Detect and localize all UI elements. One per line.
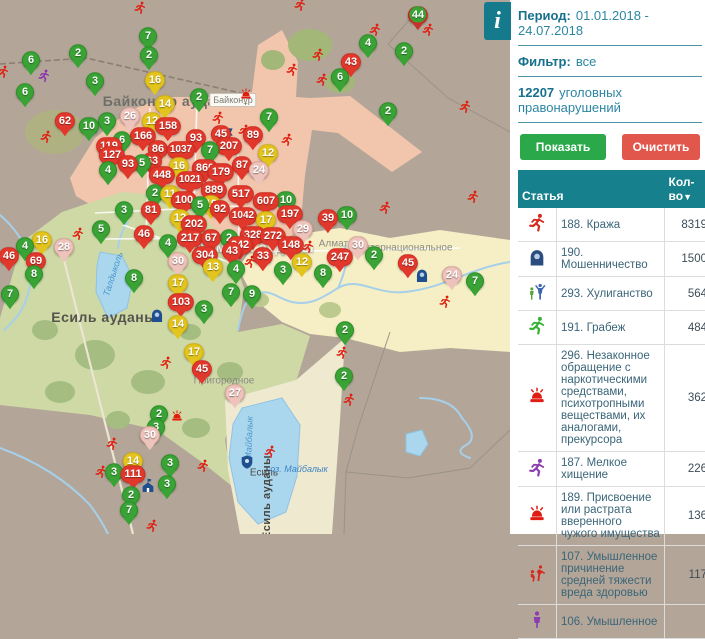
map-marker[interactable]: 16: [32, 231, 52, 249]
table-row[interactable]: 190. Мошенничество1500: [518, 242, 705, 277]
runner-icon[interactable]: [335, 346, 349, 360]
map-marker[interactable]: 92: [210, 200, 230, 218]
map-marker[interactable]: 2: [69, 44, 87, 62]
map-marker[interactable]: 12: [292, 253, 312, 271]
map-marker[interactable]: 14: [155, 95, 175, 113]
map-marker[interactable]: 148: [278, 236, 304, 254]
total-count: 12207: [518, 85, 554, 100]
runner-icon: [518, 208, 557, 242]
article-label: 107. Умышленное причинение средней тяжес…: [557, 546, 665, 605]
table-row[interactable]: 107. Умышленное причинение средней тяжес…: [518, 546, 705, 605]
map-marker[interactable]: 30: [140, 426, 160, 444]
runner-icon[interactable]: [280, 133, 294, 147]
column-article[interactable]: Статья: [518, 170, 665, 208]
map-marker[interactable]: 3: [115, 201, 133, 219]
map-marker[interactable]: 7: [1, 285, 19, 303]
runner-icon[interactable]: [159, 356, 173, 370]
map-marker[interactable]: 7: [222, 283, 240, 301]
map-marker[interactable]: 4: [359, 34, 377, 52]
map-marker[interactable]: 3: [98, 112, 116, 130]
article-count: 136: [665, 487, 705, 546]
map-marker[interactable]: 1021: [176, 171, 204, 189]
hooded-icon[interactable]: [414, 268, 430, 284]
runner-icon[interactable]: [105, 437, 119, 451]
fight-icon: [518, 546, 557, 605]
map-marker[interactable]: 247: [327, 248, 353, 266]
map-marker[interactable]: 46: [134, 225, 154, 243]
table-row[interactable]: 188. Кража8319: [518, 208, 705, 242]
map-marker[interactable]: 45: [398, 254, 418, 272]
map-marker[interactable]: 7: [260, 108, 278, 126]
map-marker[interactable]: 10: [79, 117, 99, 135]
filter-label: Фильтр:: [518, 54, 571, 69]
map-marker[interactable]: 6: [331, 68, 349, 86]
map-marker[interactable]: 24: [249, 161, 269, 179]
map-marker[interactable]: 3: [274, 261, 292, 279]
runner-icon[interactable]: [315, 73, 329, 87]
map-marker[interactable]: 4: [159, 234, 177, 252]
map-marker[interactable]: 17: [168, 274, 188, 292]
runner-icon[interactable]: [133, 1, 147, 15]
table-row[interactable]: 293. Хулиганство564: [518, 277, 705, 311]
article-label: 106. Умышленное: [557, 605, 665, 639]
map-marker[interactable]: 7: [120, 501, 138, 519]
column-count[interactable]: Кол-во▼: [665, 170, 705, 208]
crime-map[interactable]: Байконыр ауданыАлматы ауданыЕсиль ауданы…: [0, 0, 510, 534]
table-row[interactable]: 189. Присвоение или растрата вверенного …: [518, 487, 705, 546]
runner-icon[interactable]: [211, 111, 225, 125]
map-marker[interactable]: 44: [408, 6, 428, 24]
person-icon: [518, 605, 557, 639]
map-marker[interactable]: 217: [177, 229, 203, 247]
table-row[interactable]: 296. Незаконное обращение с наркотически…: [518, 345, 705, 452]
article-count: [665, 605, 705, 639]
map-marker[interactable]: 448: [149, 166, 175, 184]
runner-icon: [518, 311, 557, 345]
runner-icon[interactable]: [311, 48, 325, 62]
map-marker[interactable]: 7: [201, 141, 219, 159]
runner-icon[interactable]: [196, 459, 210, 473]
sidebar-panel: i Период:01.01.2018 - 24.07.2018 Фильтр:…: [510, 0, 705, 534]
article-count: 117: [665, 546, 705, 605]
map-marker[interactable]: 3: [195, 300, 213, 318]
map-marker[interactable]: 111: [120, 465, 145, 483]
map-marker[interactable]: 3: [86, 72, 104, 90]
runner-icon: [518, 452, 557, 487]
runner-icon[interactable]: [145, 519, 159, 533]
map-marker[interactable]: 81: [141, 201, 161, 219]
map-marker[interactable]: 33: [253, 247, 273, 265]
map-marker[interactable]: 13: [203, 258, 223, 276]
runner-icon[interactable]: [438, 295, 452, 309]
map-marker[interactable]: 3: [161, 454, 179, 472]
map-marker[interactable]: 3: [158, 475, 176, 493]
map-marker[interactable]: 12: [258, 144, 278, 162]
article-count: 226: [665, 452, 705, 487]
table-row[interactable]: 187. Мелкое хищение226: [518, 452, 705, 487]
article-label: 293. Хулиганство: [557, 277, 665, 311]
map-marker[interactable]: 1042: [229, 207, 257, 225]
runner-icon[interactable]: [458, 100, 472, 114]
map-marker[interactable]: 607: [253, 192, 279, 210]
badge-icon[interactable]: [239, 454, 255, 470]
runner-icon[interactable]: [71, 227, 85, 241]
article-label: 190. Мошенничество: [557, 242, 665, 277]
map-marker[interactable]: 16: [145, 71, 165, 89]
filter-value: все: [576, 54, 597, 69]
map-marker[interactable]: 179: [208, 163, 234, 181]
article-label: 188. Кража: [557, 208, 665, 242]
map-marker[interactable]: 158: [155, 117, 181, 135]
info-button[interactable]: i: [484, 2, 511, 40]
map-marker[interactable]: 7: [139, 27, 157, 45]
siren-icon[interactable]: [170, 410, 184, 424]
runner-icon[interactable]: [39, 130, 53, 144]
map-marker[interactable]: 2: [379, 102, 397, 120]
sort-desc-icon: ▼: [683, 192, 692, 202]
clear-button[interactable]: Очистить: [622, 134, 700, 160]
map-marker[interactable]: 2: [190, 88, 208, 106]
map-marker[interactable]: 207: [216, 137, 242, 155]
map-marker[interactable]: 8: [25, 265, 43, 283]
map-marker[interactable]: 2: [395, 42, 413, 60]
article-count: 362: [665, 345, 705, 452]
map-marker[interactable]: 4: [227, 260, 245, 278]
table-row[interactable]: 106. Умышленное: [518, 605, 705, 639]
article-count: 564: [665, 277, 705, 311]
map-marker[interactable]: 9: [243, 285, 261, 303]
filter-row: Фильтр:все: [518, 46, 702, 77]
runner-icon[interactable]: [285, 63, 299, 77]
crime-stats-table: Статья Кол-во▼ 188. Кража8319190. Мошенн…: [518, 170, 705, 639]
article-label: 189. Присвоение или растрата вверенного …: [557, 487, 665, 546]
map-marker[interactable]: 6: [22, 51, 40, 69]
map-marker[interactable]: 28: [54, 238, 74, 256]
article-count: 484: [665, 311, 705, 345]
runner-icon[interactable]: [378, 201, 392, 215]
map-marker[interactable]: 10: [337, 206, 357, 224]
article-count: 8319: [665, 208, 705, 242]
article-label: 296. Незаконное обращение с наркотически…: [557, 345, 665, 452]
hooded-icon[interactable]: [149, 308, 165, 324]
map-marker[interactable]: 46: [0, 247, 19, 265]
siren-icon: [518, 487, 557, 546]
runner-icon[interactable]: [342, 393, 356, 407]
map-marker[interactable]: 93: [118, 155, 138, 173]
hooded-icon: [518, 242, 557, 277]
siren-icon: [518, 345, 557, 452]
table-row[interactable]: 191. Грабеж484: [518, 311, 705, 345]
hooligan-icon: [518, 277, 557, 311]
map-marker[interactable]: 14: [168, 315, 188, 333]
map-marker[interactable]: 24: [442, 266, 462, 284]
map-marker[interactable]: 43: [222, 242, 242, 260]
map-marker[interactable]: 89: [243, 126, 263, 144]
map-marker[interactable]: 62: [55, 112, 75, 130]
map-marker[interactable]: 39: [318, 209, 338, 227]
map-marker[interactable]: 45: [192, 360, 212, 378]
map-marker[interactable]: 8: [125, 269, 143, 287]
map-marker[interactable]: 2: [140, 46, 158, 64]
article-label: 187. Мелкое хищение: [557, 452, 665, 487]
runner-icon[interactable]: [37, 69, 51, 83]
map-marker[interactable]: 2: [336, 321, 354, 339]
crime-map-app: Байконыр ауданыАлматы ауданыЕсиль ауданы…: [0, 0, 705, 534]
siren-icon[interactable]: [239, 88, 253, 102]
map-marker[interactable]: 27: [225, 384, 245, 402]
map-marker[interactable]: 517: [228, 185, 254, 203]
map-marker[interactable]: 30: [168, 252, 188, 270]
runner-icon[interactable]: [293, 0, 307, 12]
total-row: 12207уголовных правонарушений: [518, 77, 702, 123]
article-count: 1500: [665, 242, 705, 277]
map-marker[interactable]: 26: [120, 107, 140, 125]
map-marker[interactable]: 7: [466, 272, 484, 290]
map-marker[interactable]: 67: [201, 229, 221, 247]
map-marker[interactable]: 17: [184, 343, 204, 361]
map-marker[interactable]: 5: [191, 196, 209, 214]
runner-icon[interactable]: [0, 65, 10, 79]
runner-icon[interactable]: [263, 445, 277, 459]
map-marker[interactable]: 103: [168, 293, 194, 311]
show-button[interactable]: Показать: [520, 134, 606, 160]
map-marker[interactable]: 2: [365, 246, 383, 264]
map-marker[interactable]: 2: [335, 367, 353, 385]
period-label: Период:: [518, 8, 571, 23]
map-marker[interactable]: 6: [16, 83, 34, 101]
runner-icon[interactable]: [466, 190, 480, 204]
map-marker[interactable]: 8: [314, 264, 332, 282]
article-label: 191. Грабеж: [557, 311, 665, 345]
map-marker[interactable]: 4: [99, 161, 117, 179]
period-row: Период:01.01.2018 - 24.07.2018: [518, 0, 702, 46]
map-marker[interactable]: 5: [92, 220, 110, 238]
